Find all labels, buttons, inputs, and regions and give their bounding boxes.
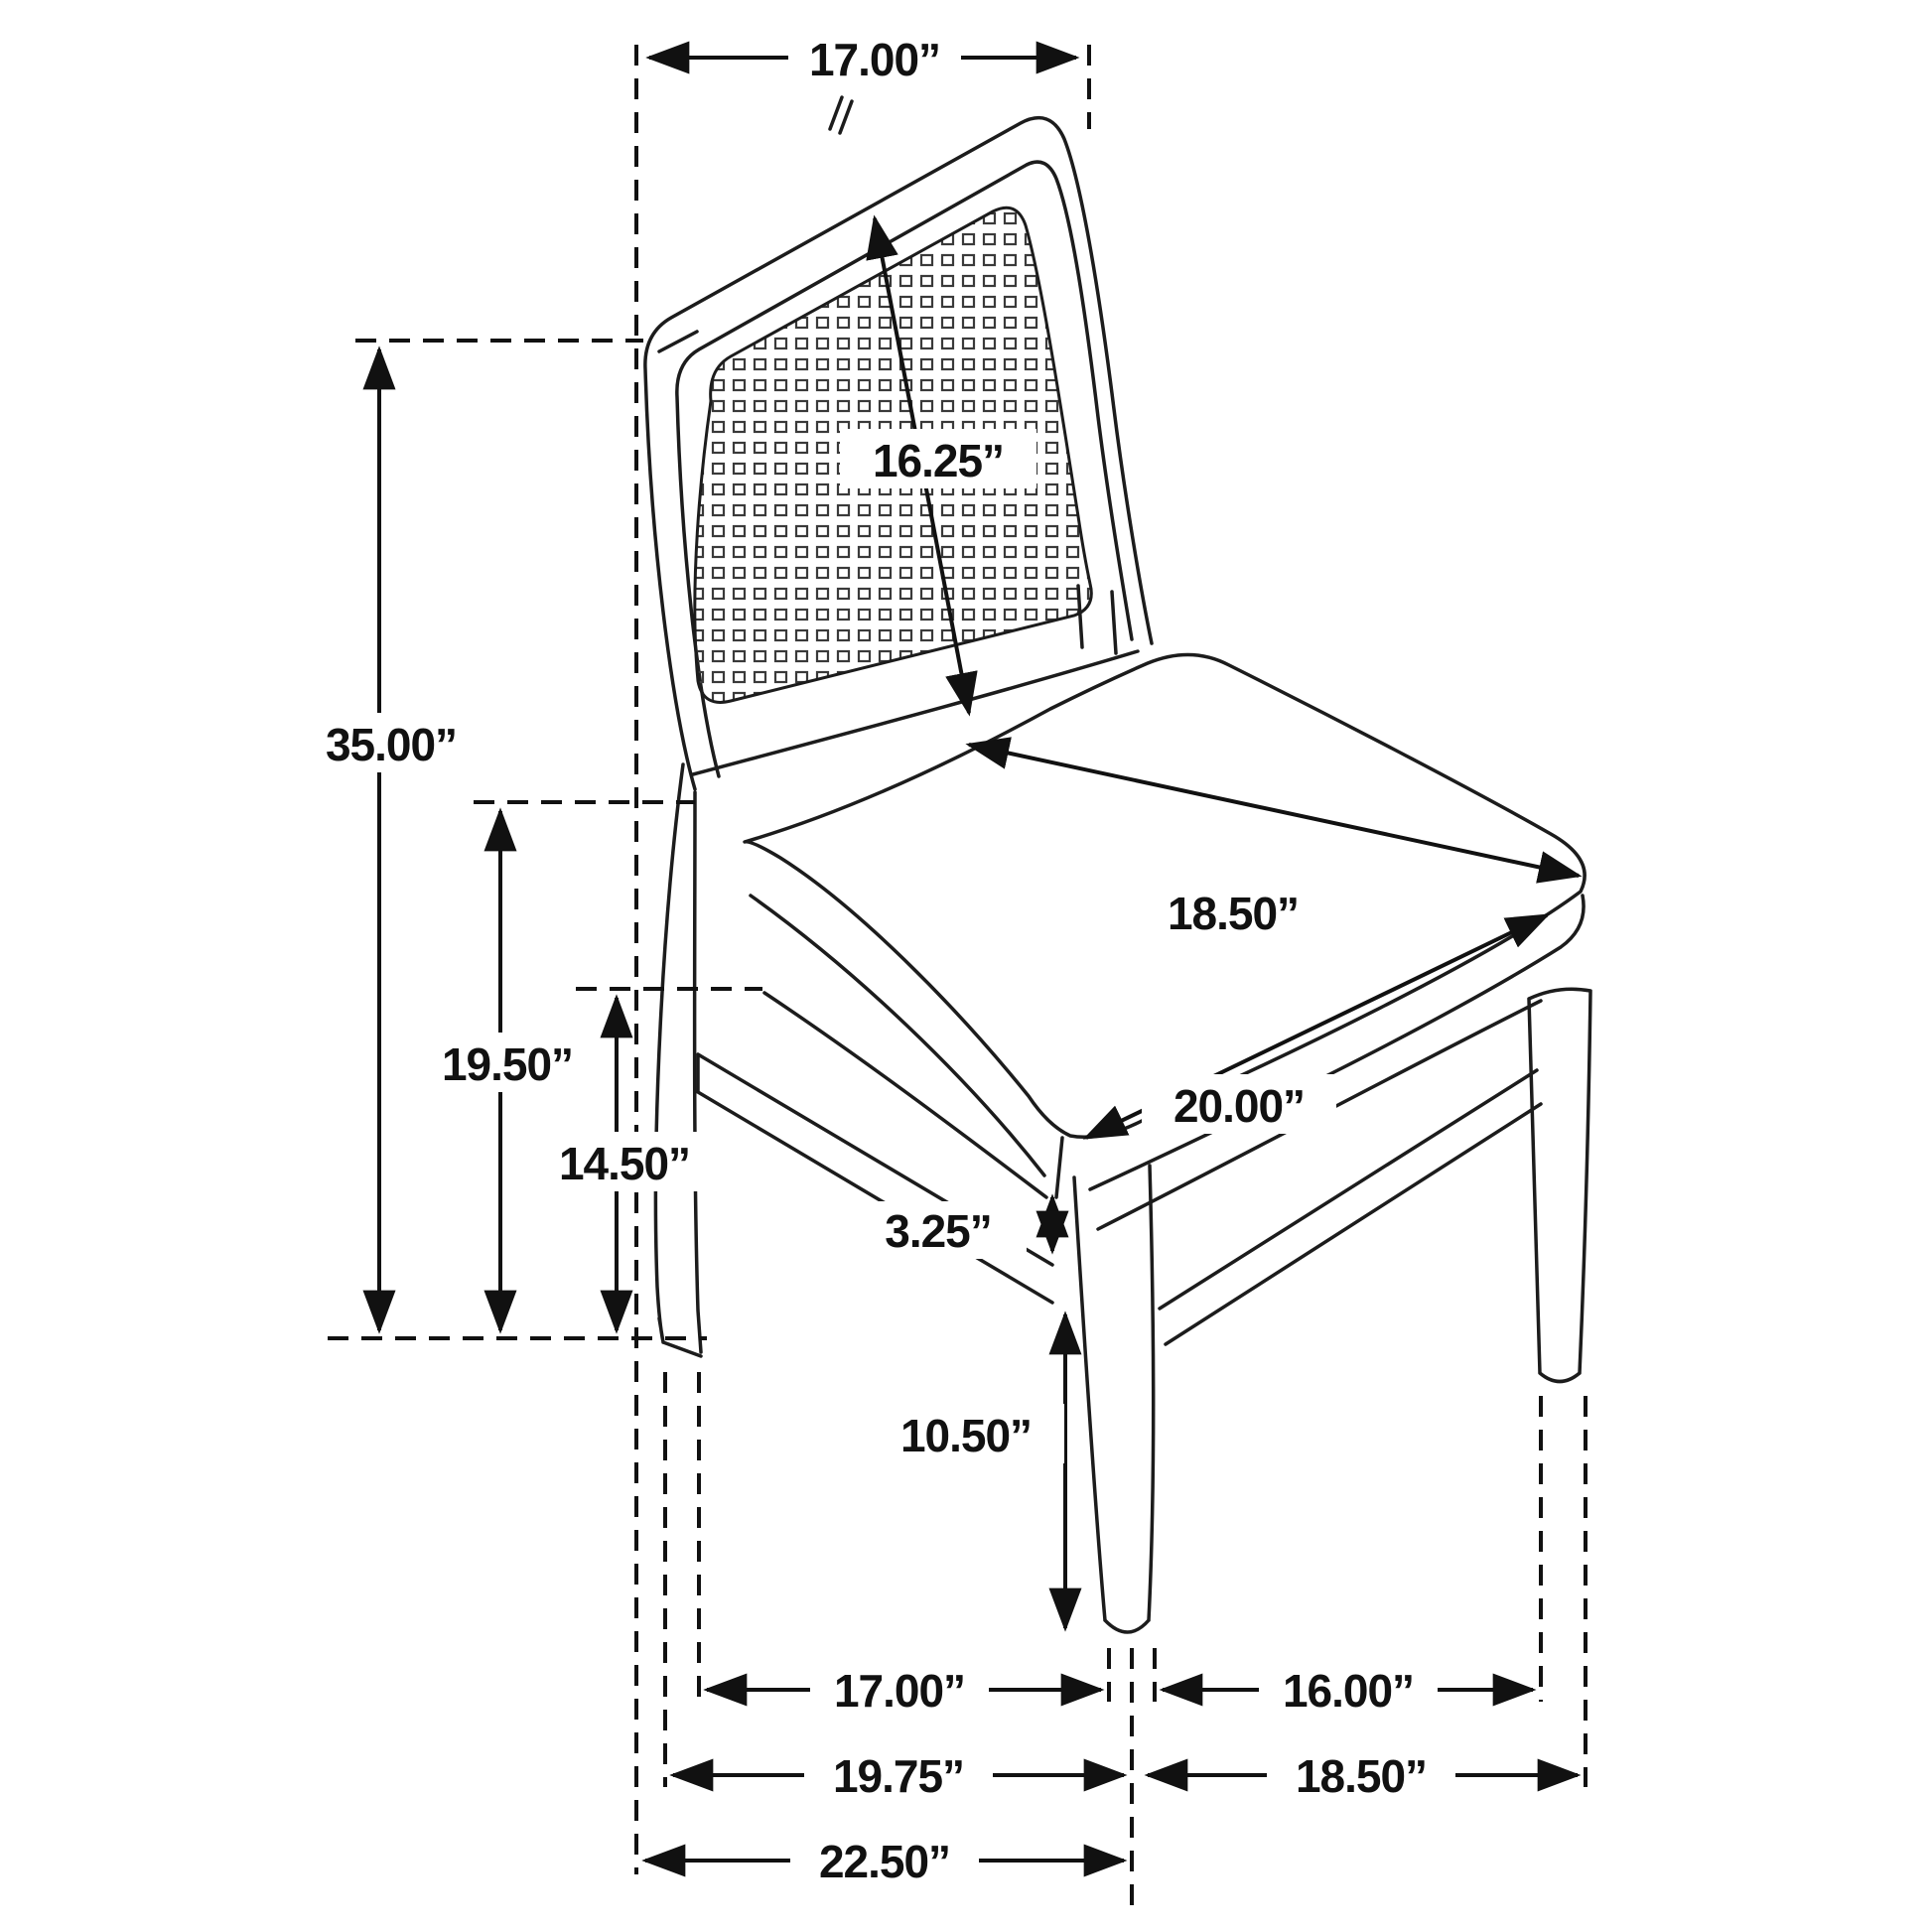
- dim-seat-frame-height-label: 14.50”: [559, 1138, 690, 1189]
- chair-drawing: [645, 97, 1590, 1632]
- dim-back-panel-diagonal-label: 16.25”: [873, 435, 1004, 486]
- dim-rear-front-leg-span-label: 17.00”: [834, 1665, 965, 1717]
- dim-base-width-label: 18.50”: [1296, 1750, 1427, 1802]
- dim-base-depth-label: 19.75”: [833, 1750, 964, 1802]
- dim-front-side-leg-span-label: 16.00”: [1283, 1665, 1414, 1717]
- dim-base-depth: 19.75”: [673, 1746, 1124, 1804]
- chair-dimension-diagram: 17.00” 16.25” 35.00” 19.50”: [0, 0, 1932, 1932]
- dim-overall-height-label: 35.00”: [326, 719, 457, 770]
- dim-seat-height-label: 19.50”: [442, 1038, 573, 1090]
- dim-apron-stretcher-gap-label: 3.25”: [885, 1205, 992, 1257]
- dim-back-top-width-label: 17.00”: [809, 34, 940, 85]
- right-leg: [1529, 989, 1590, 1381]
- dim-base-width: 18.50”: [1148, 1746, 1578, 1804]
- dim-rear-front-leg-span: 17.00”: [707, 1661, 1101, 1719]
- front-leg: [1074, 1166, 1154, 1632]
- dim-overall-depth: 22.50”: [645, 1832, 1124, 1889]
- dim-seat-height: 19.50”: [413, 802, 695, 1330]
- dim-stretcher-floor-label: 10.50”: [900, 1410, 1032, 1461]
- dim-seat-width-label: 20.00”: [1173, 1080, 1305, 1132]
- chair-dimension-diagram-page: 17.00” 16.25” 35.00” 19.50”: [0, 0, 1932, 1932]
- dim-overall-depth-label: 22.50”: [819, 1836, 950, 1887]
- dim-front-side-leg-span: 16.00”: [1163, 1661, 1533, 1719]
- dim-apron-stretcher-gap: 3.25”: [850, 1197, 1052, 1259]
- dim-stretcher-floor: 10.50”: [868, 1314, 1065, 1628]
- dim-back-top-width: 17.00”: [649, 29, 1076, 86]
- left-stretcher: [698, 1054, 1052, 1303]
- rear-leg: [655, 764, 701, 1356]
- dim-seat-depth-label: 18.50”: [1168, 888, 1299, 939]
